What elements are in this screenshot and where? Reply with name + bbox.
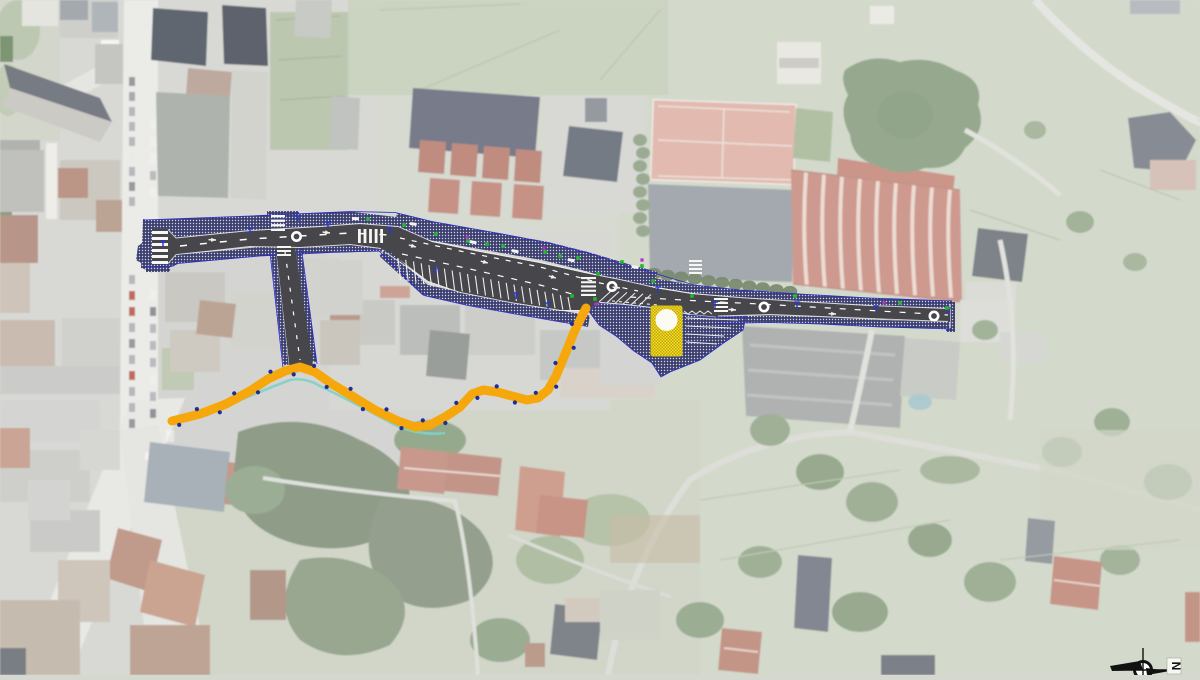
svg-text:N: N [1169,662,1183,671]
